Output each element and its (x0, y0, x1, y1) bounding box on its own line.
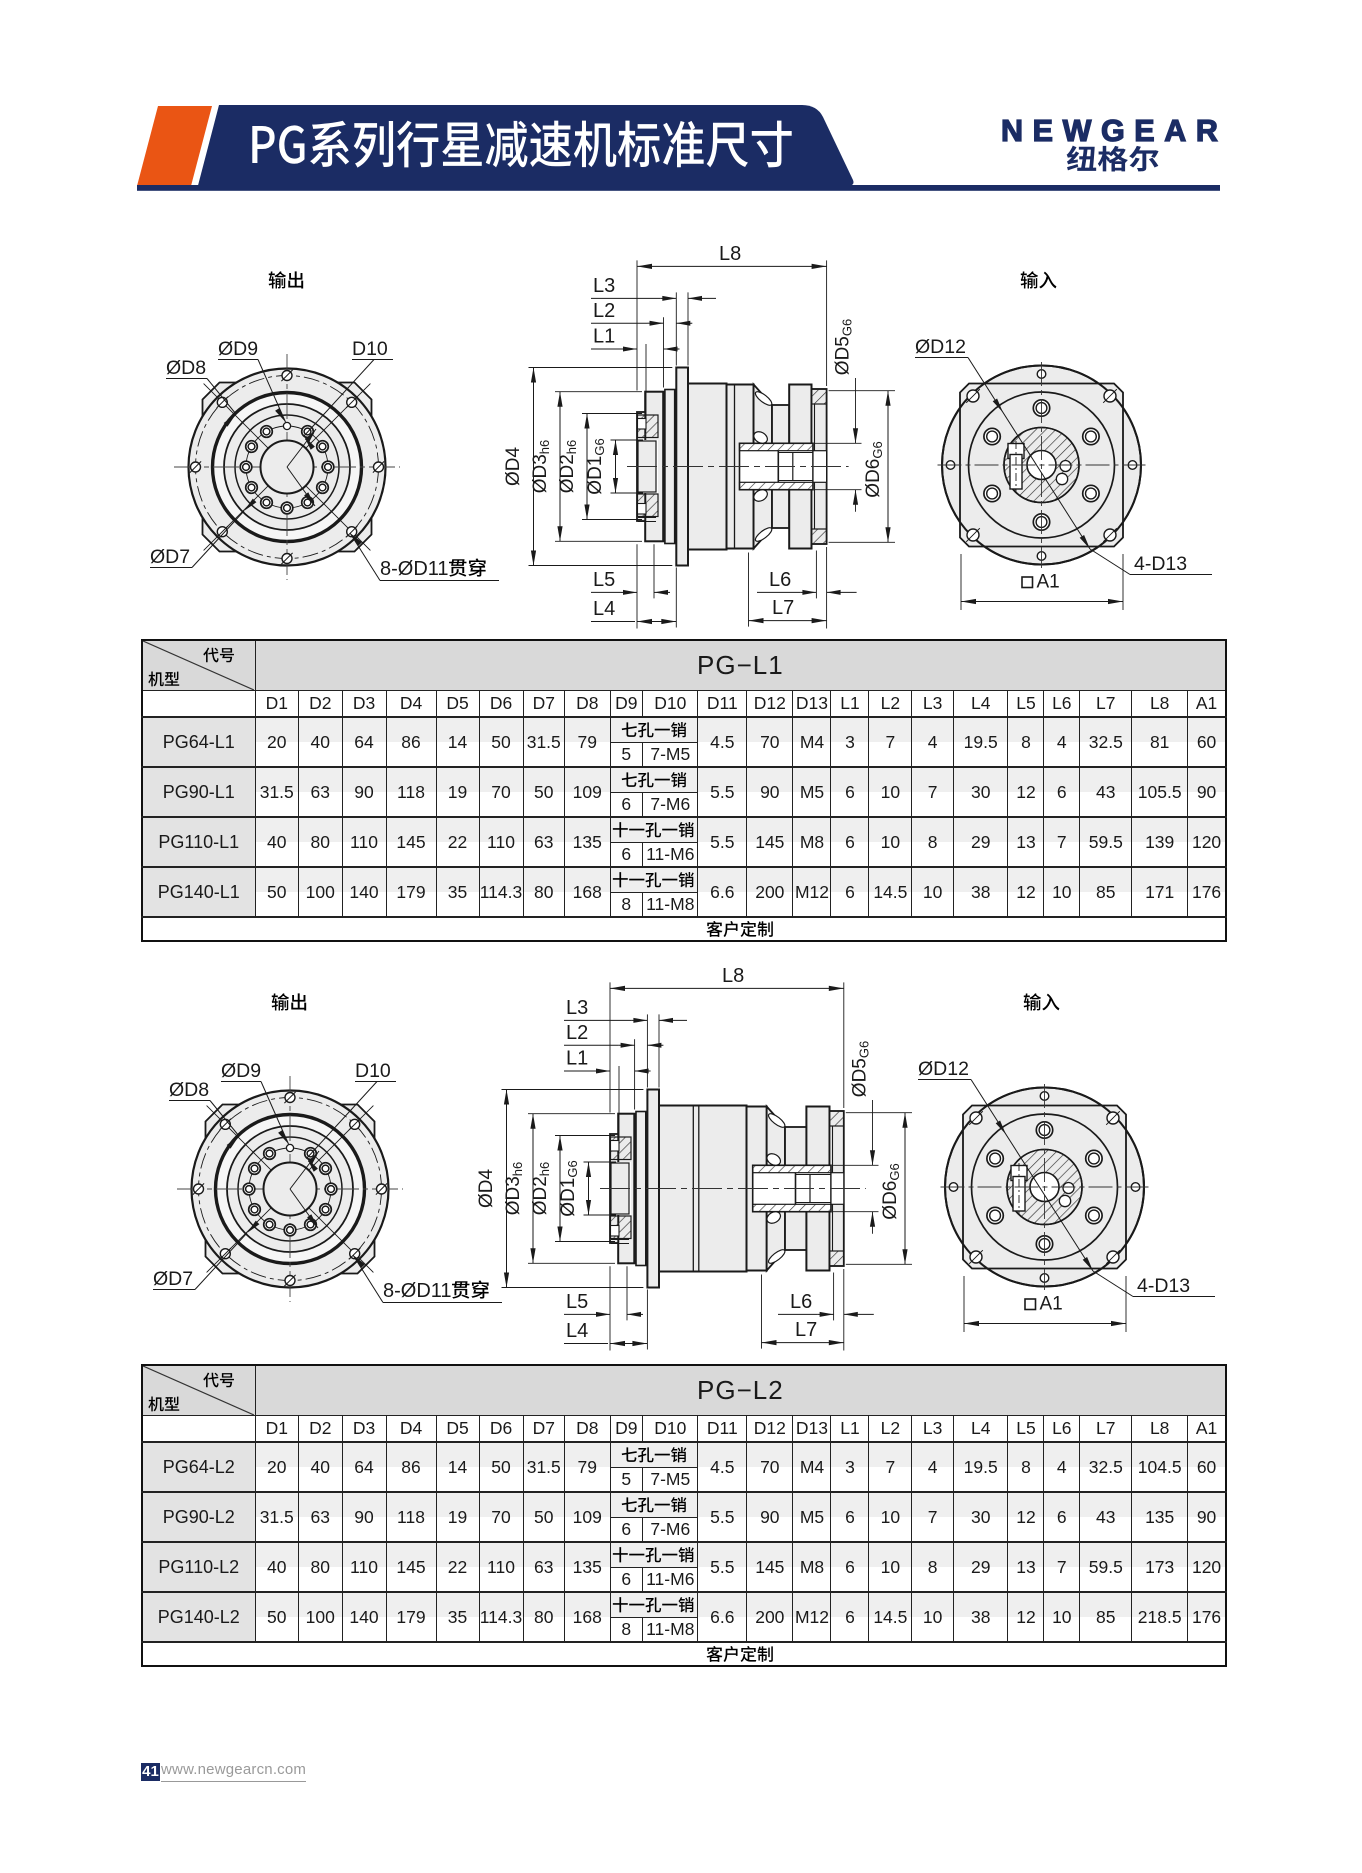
svg-text:4-D13: 4-D13 (1134, 553, 1187, 575)
svg-text:ØD4: ØD4 (476, 1169, 497, 1209)
svg-text:4-D13: 4-D13 (1137, 1275, 1190, 1297)
svg-text:ØD4: ØD4 (503, 447, 524, 487)
svg-text:L6: L6 (769, 569, 791, 591)
svg-text:A1: A1 (1040, 1294, 1063, 1315)
svg-text:ØD7: ØD7 (150, 546, 190, 568)
svg-text:A1: A1 (1037, 572, 1060, 593)
svg-text:8-ØD11: 8-ØD11 (380, 558, 449, 580)
svg-text:ØD1G6: ØD1G6 (558, 1160, 580, 1216)
svg-text:L8: L8 (722, 965, 744, 987)
svg-text:ØD8: ØD8 (166, 357, 206, 379)
svg-text:L3: L3 (566, 997, 588, 1019)
svg-text:D10: D10 (352, 338, 388, 360)
svg-text:L2: L2 (566, 1022, 588, 1044)
svg-text:ØD5G6: ØD5G6 (833, 319, 855, 375)
svg-text:ØD9: ØD9 (218, 338, 258, 360)
svg-text:ØD8: ØD8 (169, 1079, 209, 1101)
svg-text:ØD6G6: ØD6G6 (880, 1163, 902, 1219)
svg-text:L1: L1 (566, 1048, 588, 1070)
svg-text:L4: L4 (593, 598, 615, 620)
svg-text:ØD12: ØD12 (915, 336, 966, 358)
svg-text:ØD7: ØD7 (153, 1268, 193, 1290)
svg-text:L8: L8 (719, 243, 741, 265)
svg-text:L6: L6 (790, 1291, 812, 1313)
svg-text:ØD5G6: ØD5G6 (850, 1041, 872, 1097)
svg-text:L7: L7 (772, 597, 794, 619)
svg-text:L5: L5 (593, 569, 615, 591)
svg-text:D10: D10 (355, 1060, 391, 1082)
svg-text:L3: L3 (593, 275, 615, 297)
svg-text:ØD9: ØD9 (221, 1060, 261, 1082)
svg-text:L4: L4 (566, 1320, 588, 1342)
svg-text:ØD12: ØD12 (918, 1058, 969, 1080)
svg-text:ØD6G6: ØD6G6 (863, 441, 885, 497)
svg-text:L5: L5 (566, 1291, 588, 1313)
svg-text:L1: L1 (593, 326, 615, 348)
svg-text:8-ØD11: 8-ØD11 (383, 1280, 452, 1302)
svg-text:L7: L7 (795, 1319, 817, 1341)
svg-text:L2: L2 (593, 300, 615, 322)
svg-text:ØD1G6: ØD1G6 (585, 438, 607, 494)
